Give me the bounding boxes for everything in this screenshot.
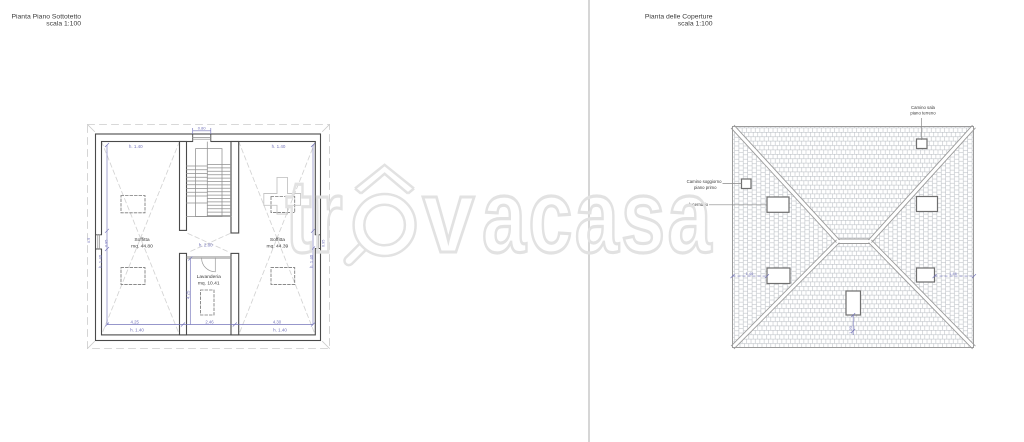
- svg-text:0.80: 0.80: [198, 126, 207, 131]
- svg-text:Soffitta: Soffitta: [270, 237, 285, 243]
- svg-text:mq. 10.41: mq. 10.41: [198, 281, 220, 287]
- svg-text:mq. 44.80: mq. 44.80: [131, 243, 153, 249]
- svg-text:Lavanderia: Lavanderia: [197, 274, 221, 280]
- svg-text:0.9: 0.9: [87, 238, 91, 243]
- svg-text:h. 1.40: h. 1.40: [272, 144, 286, 149]
- svg-text:h. 1.40: h. 1.40: [273, 328, 287, 333]
- svg-text:4.25: 4.25: [186, 290, 191, 299]
- svg-text:scala 1:100: scala 1:100: [678, 21, 713, 28]
- svg-text:Camino sala: Camino sala: [911, 105, 935, 110]
- svg-text:h. 1.40: h. 1.40: [130, 328, 144, 333]
- svg-text:h. 1.40: h. 1.40: [98, 254, 103, 268]
- svg-text:h. 1.40: h. 1.40: [129, 144, 143, 149]
- svg-text:1.46: 1.46: [949, 271, 958, 276]
- svg-text:h. 2.80: h. 2.80: [199, 242, 213, 247]
- svg-text:Pianta delle Coperture: Pianta delle Coperture: [645, 13, 713, 20]
- svg-text:scala 1:100: scala 1:100: [46, 21, 81, 28]
- svg-text:tr: tr: [286, 157, 343, 274]
- svg-text:2.46: 2.46: [205, 319, 214, 324]
- svg-text:1.20: 1.20: [848, 325, 853, 334]
- svg-text:Soffitta: Soffitta: [134, 237, 149, 243]
- svg-text:acasa: acasa: [482, 157, 714, 274]
- svg-text:piano terreno: piano terreno: [910, 111, 936, 116]
- svg-text:1.46: 1.46: [746, 271, 755, 276]
- svg-text:4.25: 4.25: [131, 319, 140, 324]
- svg-text:0.95: 0.95: [105, 240, 109, 247]
- svg-text:4.30: 4.30: [273, 319, 282, 324]
- svg-text:Pianta Piano Sottotetto: Pianta Piano Sottotetto: [11, 13, 81, 20]
- svg-text:v: v: [423, 157, 475, 274]
